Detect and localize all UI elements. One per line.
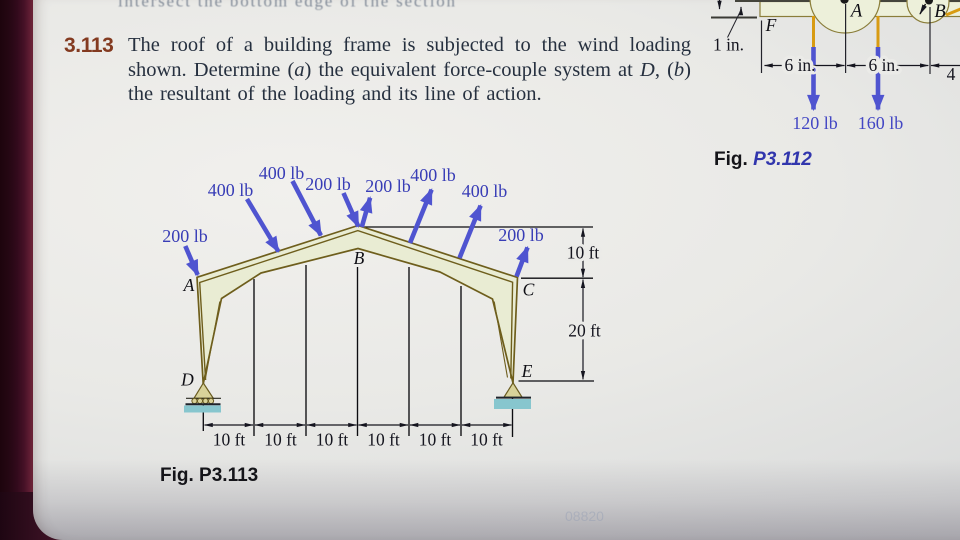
svg-text:400 lb: 400 lb xyxy=(208,180,254,200)
svg-text:400 lb: 400 lb xyxy=(462,181,508,201)
svg-text:10 ft: 10 ft xyxy=(316,430,349,450)
svg-text:400 lb: 400 lb xyxy=(410,165,456,185)
svg-text:200 lb: 200 lb xyxy=(365,176,411,196)
svg-text:400 lb: 400 lb xyxy=(259,163,305,183)
svg-text:10 ft: 10 ft xyxy=(367,430,400,450)
svg-text:E: E xyxy=(521,361,533,381)
svg-text:B: B xyxy=(934,2,945,22)
svg-text:20 ft: 20 ft xyxy=(568,321,601,341)
svg-text:120 lb: 120 lb xyxy=(792,113,838,133)
svg-text:1 in.: 1 in. xyxy=(713,35,744,55)
svg-text:A: A xyxy=(849,2,863,22)
svg-text:08820: 08820 xyxy=(565,508,604,524)
svg-text:A: A xyxy=(183,275,195,295)
svg-text:10 ft: 10 ft xyxy=(419,430,452,450)
svg-text:6 in.: 6 in. xyxy=(868,55,899,75)
svg-text:10 ft: 10 ft xyxy=(264,430,297,450)
svg-text:200 lb: 200 lb xyxy=(498,225,544,245)
svg-text:Fig. P3.112: Fig. P3.112 xyxy=(714,149,812,170)
svg-text:10 ft: 10 ft xyxy=(567,243,600,263)
svg-text:F: F xyxy=(765,15,777,35)
svg-text:200 lb: 200 lb xyxy=(162,226,208,246)
svg-text:160 lb: 160 lb xyxy=(858,113,904,133)
svg-text:10 ft: 10 ft xyxy=(470,430,503,450)
svg-text:C: C xyxy=(523,280,535,300)
svg-text:6 in.: 6 in. xyxy=(784,55,815,75)
svg-text:intersect the bottom edge of t: intersect the bottom edge of the section xyxy=(118,0,456,11)
svg-text:200 lb: 200 lb xyxy=(305,174,351,194)
svg-text:B: B xyxy=(354,248,365,268)
svg-text:D: D xyxy=(180,370,194,390)
svg-text:Fig. P3.113: Fig. P3.113 xyxy=(160,465,258,486)
svg-text:10 ft: 10 ft xyxy=(213,430,246,450)
svg-text:4: 4 xyxy=(947,64,956,84)
